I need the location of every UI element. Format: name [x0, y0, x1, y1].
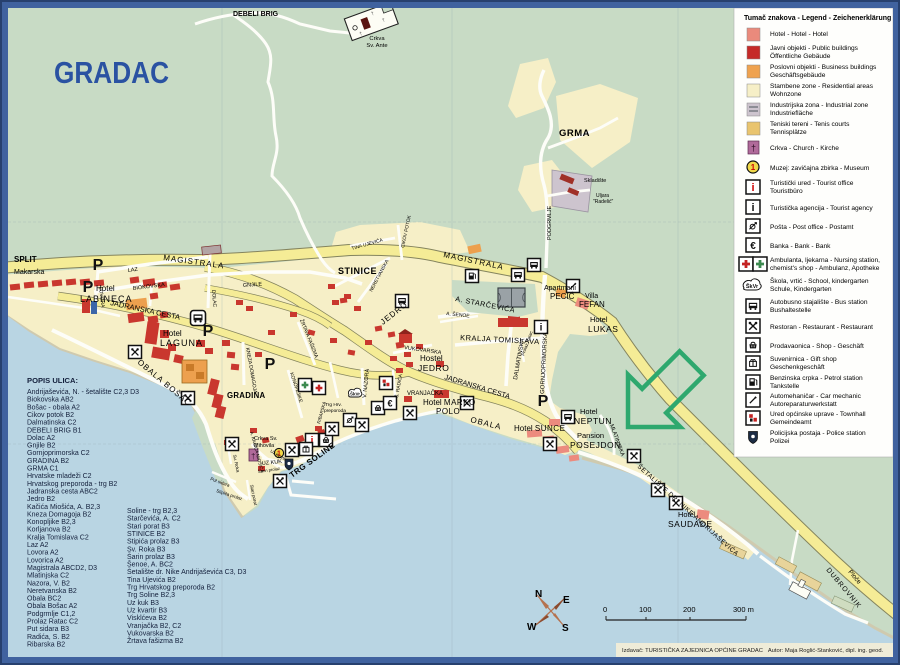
svg-text:300 m: 300 m — [733, 605, 754, 614]
svg-text:DEBELI BRIG: DEBELI BRIG — [233, 11, 279, 18]
svg-text:"Radelić": "Radelić" — [593, 199, 613, 205]
svg-text:W: W — [527, 622, 537, 633]
svg-text:Policijska postaja - Police st: Policijska postaja - Police station — [770, 430, 866, 437]
svg-text:LAGUNA: LAGUNA — [160, 338, 203, 348]
svg-text:Hotel - Hotel - Hotel: Hotel - Hotel - Hotel — [770, 31, 828, 38]
svg-text:PODGRMLJE: PODGRMLJE — [547, 205, 553, 240]
svg-text:200: 200 — [683, 605, 696, 614]
svg-text:Izdavač: TURISTIČKA ZAJEDNICA: Izdavač: TURISTIČKA ZAJEDNICA OPĆINE GRA… — [622, 647, 884, 654]
svg-text:GRADINA: GRADINA — [227, 391, 266, 400]
svg-text:Crkva: Crkva — [369, 36, 385, 42]
svg-text:P: P — [538, 393, 549, 410]
svg-text:Crkva - Church - Kirche: Crkva - Church - Kirche — [770, 145, 839, 152]
svg-text:Stambene zone - Residential ar: Stambene zone - Residential areas — [770, 83, 874, 90]
svg-text:i: i — [751, 202, 754, 214]
svg-text:Hotel: Hotel — [163, 329, 182, 338]
svg-text:Ambulanta, ljekarna - Nursing: Ambulanta, ljekarna - Nursing station, — [770, 257, 880, 264]
svg-text:Hotel MARKO: Hotel MARKO — [423, 398, 476, 407]
svg-text:LUKAS: LUKAS — [588, 324, 618, 334]
svg-text:Autobusno stajalište - Bus sta: Autobusno stajalište - Bus station — [770, 299, 868, 306]
svg-text:GRADAC: GRADAC — [54, 55, 169, 90]
svg-text:ŠkVr: ŠkVr — [350, 390, 360, 397]
svg-text:FEFAN: FEFAN — [579, 300, 605, 309]
svg-text:Hotel: Hotel — [580, 407, 598, 416]
svg-text:Hostel: Hostel — [420, 354, 443, 363]
svg-text:Automehaničar - Car mechanic: Automehaničar - Car mechanic — [770, 393, 862, 400]
svg-text:i: i — [540, 323, 543, 334]
svg-text:Trg Hrv.: Trg Hrv. — [325, 402, 342, 408]
svg-text:Tankstelle: Tankstelle — [770, 383, 800, 390]
svg-text:†: † — [751, 143, 756, 153]
svg-text:Banka - Bank - Bank: Banka - Bank - Bank — [770, 243, 831, 250]
svg-text:Villa: Villa — [585, 293, 598, 300]
svg-text:€: € — [750, 241, 756, 252]
svg-text:Ured općinske uprave - Townhal: Ured općinske uprave - Townhall — [770, 411, 866, 418]
svg-text:Javni objekti - Public buildin: Javni objekti - Public buildings — [770, 45, 859, 52]
svg-text:Muzej: zavičajna zbirka - Muse: Muzej: zavičajna zbirka - Museum — [770, 165, 870, 172]
svg-text:NEPTUN: NEPTUN — [574, 416, 612, 426]
svg-text:chemist's shop - Ambulanz, Apo: chemist's shop - Ambulanz, Apotheke — [770, 265, 880, 272]
svg-text:Autoreparaturwerkstatt: Autoreparaturwerkstatt — [770, 401, 837, 408]
svg-text:Geschenkgeschäft: Geschenkgeschäft — [770, 364, 825, 371]
svg-text:Teniski tereni - Tenis courts: Teniski tereni - Tenis courts — [770, 121, 850, 128]
svg-text:POSEJDON: POSEJDON — [570, 440, 621, 450]
svg-text:JEDRO: JEDRO — [418, 363, 449, 373]
svg-text:Wohnzone: Wohnzone — [770, 91, 802, 98]
svg-text:Hotel SUNCE: Hotel SUNCE — [514, 424, 565, 433]
svg-text:STINICE: STINICE — [338, 266, 377, 276]
svg-text:Pansion: Pansion — [577, 431, 604, 440]
svg-text:Touristbüro: Touristbüro — [770, 188, 803, 195]
svg-text:ŠkVr: ŠkVr — [746, 282, 759, 290]
svg-text:preporoda: preporoda — [324, 408, 346, 414]
svg-text:GRMA: GRMA — [559, 128, 590, 139]
svg-text:Schule, Kindergarten: Schule, Kindergarten — [770, 286, 832, 293]
svg-text:Poslovni objekti - Business bu: Poslovni objekti - Business buildings — [770, 64, 877, 71]
svg-text:€: € — [387, 398, 392, 408]
svg-text:Prodavaonica - Shop - Geschäft: Prodavaonica - Shop - Geschäft — [770, 343, 864, 350]
svg-text:Tennisplätze: Tennisplätze — [770, 129, 807, 136]
svg-text:Makarska: Makarska — [14, 269, 44, 276]
svg-text:PECIĆ: PECIĆ — [550, 292, 575, 301]
svg-text:Apartmani: Apartmani — [544, 285, 576, 292]
svg-text:Hotel: Hotel — [590, 315, 608, 324]
svg-text:E: E — [563, 595, 570, 606]
svg-text:Suvenirnica - Gift shop: Suvenirnica - Gift shop — [770, 356, 837, 363]
svg-text:P: P — [265, 356, 276, 373]
svg-text:SAUDADE: SAUDADE — [668, 519, 713, 529]
svg-text:Benzinska crpka - Petrol stati: Benzinska crpka - Petrol station — [770, 375, 863, 382]
svg-text:Hotel: Hotel — [678, 510, 696, 519]
svg-text:N: N — [535, 589, 542, 600]
svg-text:Industrijska zona - Industrial: Industrijska zona - Industrial zone — [770, 102, 869, 109]
svg-text:POPIS ULICA:: POPIS ULICA: — [27, 376, 78, 385]
svg-text:100: 100 — [639, 605, 652, 614]
svg-text:Turistički ured - Tourist offi: Turistički ured - Tourist office — [770, 180, 854, 187]
svg-text:LABINECA: LABINECA — [80, 294, 133, 304]
svg-text:P: P — [93, 257, 104, 274]
svg-text:Restoran - Restaurant - Restau: Restoran - Restaurant - Restaurant — [770, 324, 873, 331]
svg-text:POLO: POLO — [436, 407, 460, 416]
svg-text:P: P — [203, 323, 214, 340]
svg-text:Industriefläche: Industriefläche — [770, 110, 813, 117]
svg-text:Bushaltestelle: Bushaltestelle — [770, 307, 811, 314]
svg-text:i: i — [751, 182, 754, 194]
svg-text:Škola, vrtić - School, kinderg: Škola, vrtić - School, kindergarten — [770, 276, 869, 285]
svg-text:Tumač znakova - Legend - Zeich: Tumač znakova - Legend - Zeichenerklärun… — [744, 15, 891, 22]
svg-text:S: S — [562, 623, 569, 634]
svg-text:SPLIT: SPLIT — [14, 255, 37, 264]
svg-text:0: 0 — [603, 605, 607, 614]
svg-text:VRANJAČKA: VRANJAČKA — [407, 390, 443, 397]
svg-text:Polizei: Polizei — [770, 438, 790, 445]
svg-text:Geschäftsgebäude: Geschäftsgebäude — [770, 72, 826, 79]
svg-text:Pošta - Post office - Postamt: Pošta - Post office - Postamt — [770, 224, 854, 231]
svg-text:Turistička agencija - Tourist: Turistička agencija - Tourist agency — [770, 205, 873, 212]
svg-text:Sv. Ante: Sv. Ante — [366, 43, 387, 49]
svg-text:Gemeindeamt: Gemeindeamt — [770, 419, 812, 426]
svg-text:Skladište: Skladište — [584, 178, 606, 184]
svg-text:1: 1 — [751, 163, 756, 172]
svg-text:Öffentliche Gebäude: Öffentliche Gebäude — [770, 52, 831, 60]
svg-text:Hotel: Hotel — [96, 284, 115, 293]
